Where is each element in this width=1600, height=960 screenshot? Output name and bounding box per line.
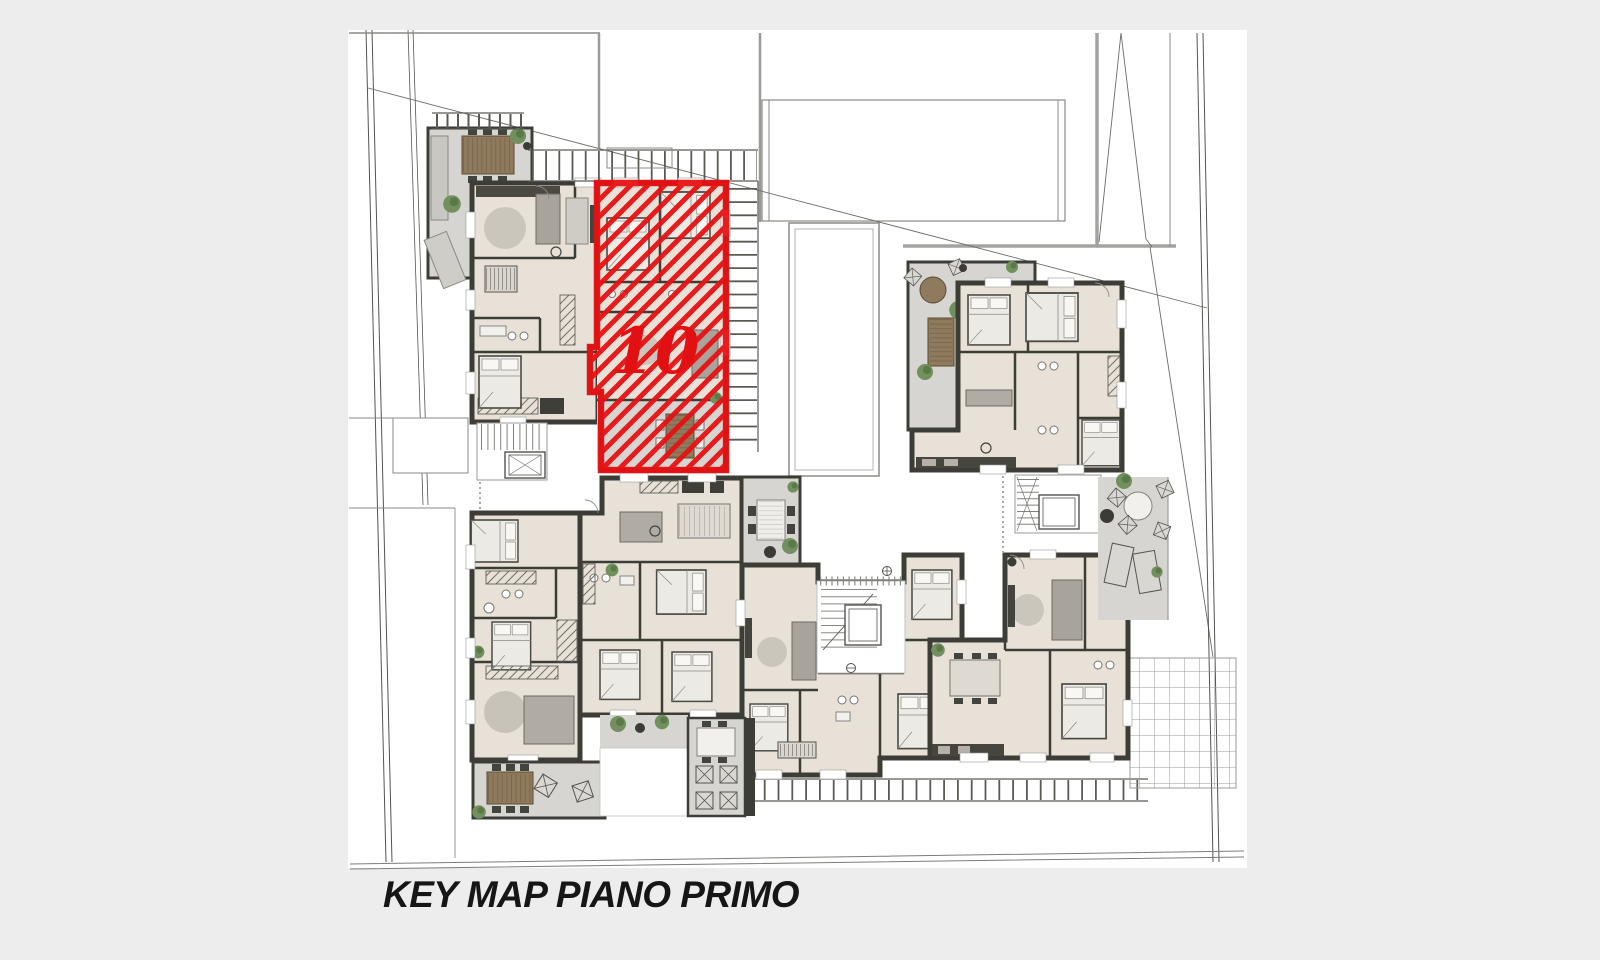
building-center-wing bbox=[580, 473, 742, 719]
courtyard-garden bbox=[600, 715, 755, 816]
unit-10-highlight[interactable]: 10 bbox=[590, 178, 730, 470]
stair-core-central bbox=[817, 566, 905, 673]
floor-plan-drawing: 10 bbox=[0, 0, 1600, 960]
plan-caption: KEY MAP PIANO PRIMO bbox=[383, 874, 799, 916]
stair-core-west bbox=[477, 423, 547, 480]
key-map-page: 10 KEY MAP PIANO PRIMO bbox=[0, 0, 1600, 960]
stair-core-east bbox=[1015, 475, 1101, 533]
building-northeast bbox=[904, 259, 1126, 474]
terrace-east bbox=[1098, 473, 1174, 620]
courtyard-lightwell bbox=[789, 223, 879, 476]
building-southwest-wing bbox=[466, 513, 580, 764]
unit-10-label: 10 bbox=[610, 314, 699, 389]
pergola-grid bbox=[1130, 658, 1236, 788]
terrace-center bbox=[742, 477, 800, 565]
terrace-southwest bbox=[472, 762, 605, 819]
